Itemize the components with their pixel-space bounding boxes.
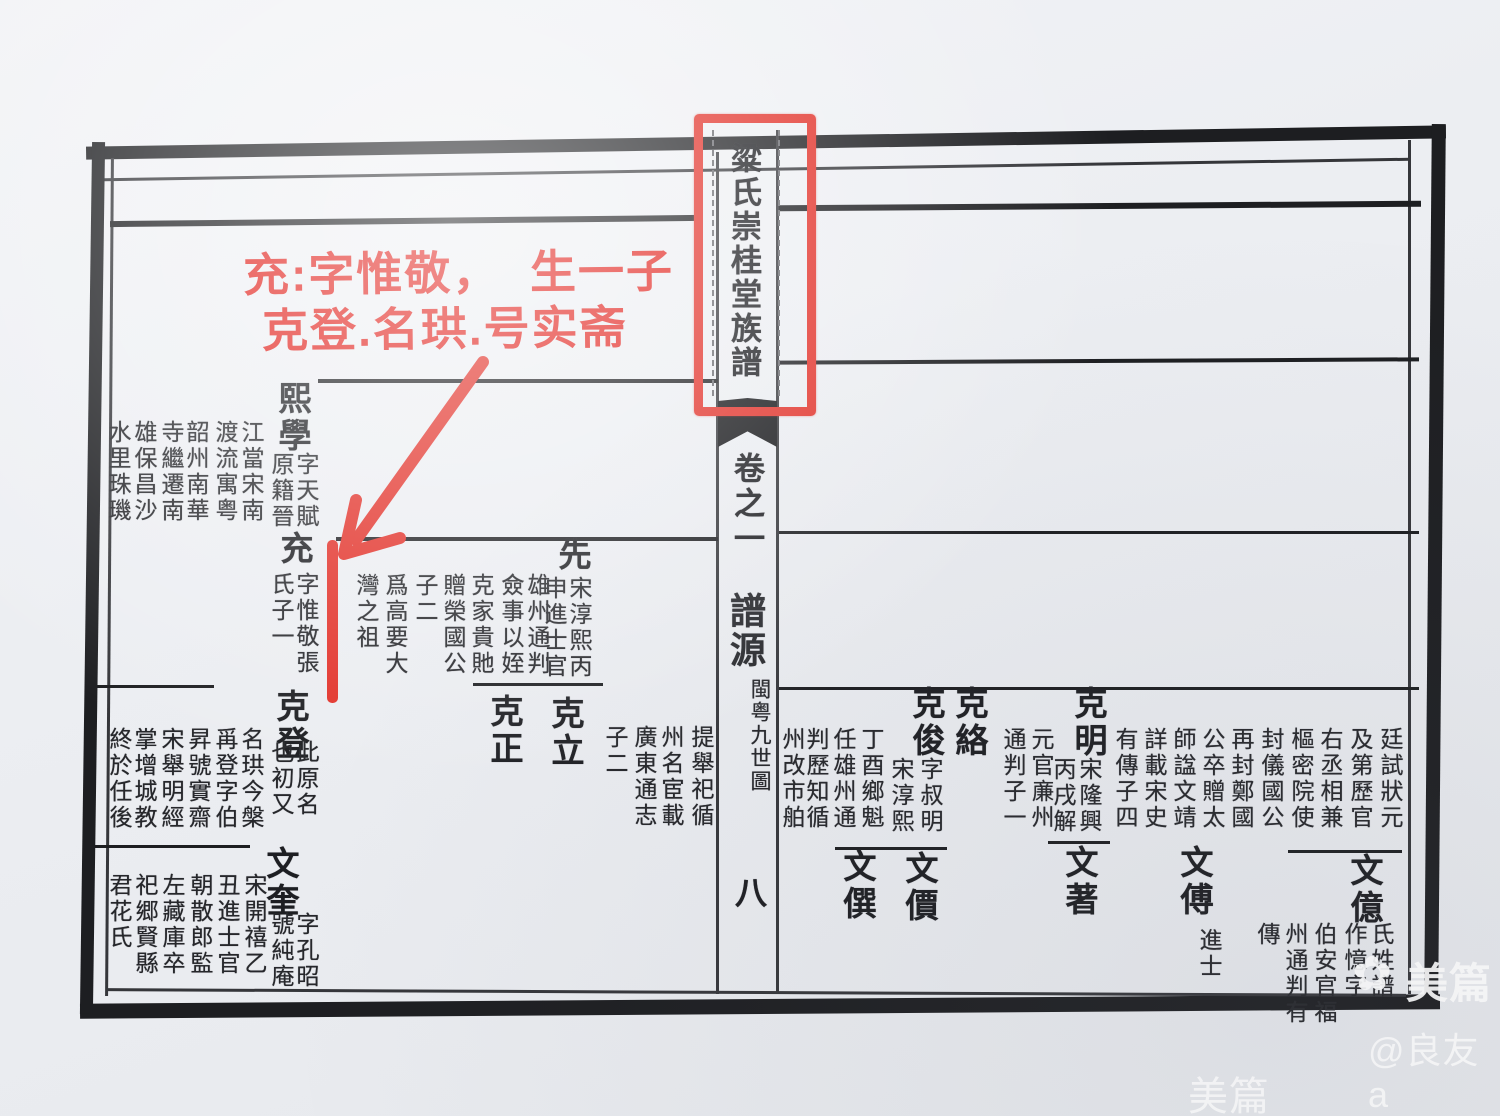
wenfu-sub-col-0: 進士: [1196, 928, 1219, 980]
wenkui-note-col-0: 宋開禧乙: [241, 873, 264, 977]
ancestor-name-xixue: 熙學: [276, 381, 309, 455]
kejia-note-col-4: 封儀國公: [1258, 727, 1281, 831]
kejia-note-col-3: 樞密院使: [1288, 727, 1311, 831]
ancestor-name-keluo: 克絡: [953, 686, 986, 760]
descendant-name-wenjia: 文價: [903, 851, 936, 925]
continuation-note-col-2: 廣東通志: [631, 725, 654, 829]
keming-note-col-1: 通判子一: [1000, 727, 1023, 831]
ancestor-name-chong: 充: [278, 531, 311, 568]
kejia-note-col-0: 廷試狀元: [1377, 727, 1400, 831]
page-border-right: [1424, 124, 1446, 998]
red-highlight-bar: [327, 540, 338, 703]
xixue-note-col-2: 韶州南華: [183, 420, 206, 524]
kedeng-note-col-1: 爯登字伯: [212, 727, 235, 831]
kejun-sub-col-0: 字叔明: [917, 757, 940, 835]
rule-left-4: [96, 685, 214, 688]
kejun-note-col-3: 州改市舶: [779, 727, 802, 831]
kedeng-sub-col-0: 此原名: [293, 740, 316, 818]
continuation-note-col-1: 州名宦載: [658, 725, 681, 829]
xian-note-col-2: 克家貴貤: [468, 573, 491, 677]
continuation-note-col-3: 子二: [602, 725, 625, 777]
keming-sub-col-1: 丙戌解: [1050, 757, 1073, 835]
wenkui-sub-col-0: 字孔昭: [293, 912, 316, 990]
rule-left-2: [318, 379, 718, 383]
wenkui-note-col-3: 左藏庫卒: [159, 873, 182, 977]
ancestor-name-wenkui: 文奎: [264, 846, 297, 920]
section-subtitle: 閩粤九世圖: [749, 678, 770, 793]
wenyi-sub-col-4: 傳: [1254, 922, 1277, 948]
chong-sub-col-0: 字惟敬張: [293, 572, 316, 676]
kedeng-note-col-2: 昇號實齋: [185, 727, 208, 831]
ancestor-name-keli: 克立: [549, 696, 582, 770]
kedeng-note-col-0: 名珙今槃: [238, 727, 261, 831]
xian-sub-col-0: 宋淳熙丙: [566, 576, 589, 680]
descendant-name-wenzhu: 文著: [1063, 845, 1096, 919]
rule-right-3: [779, 531, 1419, 534]
kejun-note-col-0: 丁酉鄉魁: [858, 727, 881, 831]
kejun-sub-col-1: 宋淳熙: [888, 757, 911, 835]
wenyi-sub-col-3: 州通判有: [1282, 922, 1305, 1026]
kejia-note-col-8: 詳載宋史: [1141, 727, 1164, 831]
watermark-logo-flower-icon: ✿: [1352, 946, 1393, 1002]
xixue-sub-col-1: 原籍晉: [268, 452, 291, 530]
xian-note-col-0: 雄州通判: [524, 573, 547, 677]
page-border-left: [80, 142, 105, 1014]
page-border-bottom: [80, 994, 1440, 1018]
xian-note-col-4: 子二: [412, 573, 435, 625]
kejia-note-col-5: 再封鄭國: [1228, 727, 1251, 831]
descendant-name-wenfu: 文傅: [1178, 845, 1211, 919]
kedeng-note-col-4: 掌增城教: [131, 727, 154, 831]
watermark-id: 美篇号:38610164: [1188, 1064, 1500, 1116]
keming-note-col-0: 元官亷州: [1028, 727, 1051, 831]
kedeng-note-col-5: 終於任後: [106, 727, 129, 831]
rule-left-1: [110, 215, 700, 227]
xian-note-col-5: 爲高要大: [382, 573, 405, 677]
xian-note-col-1: 僉事以姪: [498, 573, 521, 677]
keming-sub-col-0: 宋隆興: [1076, 757, 1099, 835]
descendant-name-wenyi: 文億: [1348, 853, 1381, 927]
kejun-note-col-1: 任雄州通: [830, 727, 853, 831]
xixue-note-col-4: 雄保昌沙: [131, 420, 154, 524]
page-number: 八: [733, 876, 765, 912]
rule-right-1: [779, 201, 1421, 211]
wenkui-note-col-5: 君花氏: [106, 873, 129, 951]
xixue-note-col-3: 寺繼遷南: [158, 420, 181, 524]
underline-left-block: [92, 845, 250, 848]
ancestor-name-kezheng: 克正: [488, 694, 521, 768]
ancestor-name-kejun: 克俊: [910, 686, 943, 760]
section-title: 譜源: [727, 592, 763, 670]
rule-left-3: [336, 537, 718, 541]
chong-sub-col-1: 氏子一: [268, 572, 291, 650]
wenkui-note-col-2: 朝散郎監: [187, 873, 210, 977]
kejun-note-col-2: 判歷知循: [803, 727, 826, 831]
kejia-note-col-2: 右丞相兼: [1317, 727, 1340, 831]
page-inner-line-left: [105, 158, 114, 996]
ancestor-name-xian: 先: [556, 537, 589, 574]
handwritten-note-line2: 克登.名珙.号实斋: [262, 291, 628, 361]
kejia-note-col-6: 公卒贈太: [1199, 727, 1222, 831]
kedeng-sub-col-1: 也初又: [268, 740, 291, 818]
kejia-note-col-1: 及第歷官: [1347, 727, 1370, 831]
watermark-brand: 美篇: [1406, 950, 1492, 1011]
wenkui-note-col-4: 祀郷賢縣: [132, 873, 155, 977]
kejia-note-col-9: 有傳子四: [1112, 727, 1135, 831]
descendant-name-wenzhuan: 文僎: [841, 849, 874, 923]
xixue-note-col-1: 渡流寓粤: [212, 420, 235, 524]
volume-label: 卷之一: [730, 452, 761, 557]
xixue-note-col-5: 水里珠璣: [105, 420, 128, 524]
xian-note-col-3: 贈榮國公: [440, 573, 463, 677]
wenkui-note-col-1: 丑進士官: [214, 873, 237, 977]
xixue-note-col-0: 江當宋南: [238, 420, 261, 524]
page-inner-line-right: [1408, 140, 1411, 994]
kejia-note-col-7: 師諡文靖: [1170, 727, 1193, 831]
kedeng-note-col-3: 宋舉明經: [158, 727, 181, 831]
rule-right-2: [779, 357, 1419, 364]
wenkui-sub-col-1: 號純庵: [268, 912, 291, 990]
underline-xian-note: [473, 683, 603, 686]
ancestor-name-keming: 克明: [1072, 686, 1105, 760]
xian-note-col-6: 灣之祖: [353, 573, 376, 651]
genealogy-photo-page: 粱氏崇桂堂族譜 卷之一 譜源 閩粤九世圖 八 熙學 字天賦原籍晉 江當宋南渡流寓…: [0, 0, 1500, 1116]
xixue-sub-col-0: 字天賦: [293, 452, 316, 530]
continuation-note-col-0: 提舉祀循: [688, 725, 711, 829]
wenyi-sub-col-2: 伯安官福: [1311, 922, 1334, 1026]
title-highlight-box: [694, 114, 816, 416]
underline-keming-note: [1048, 841, 1110, 844]
